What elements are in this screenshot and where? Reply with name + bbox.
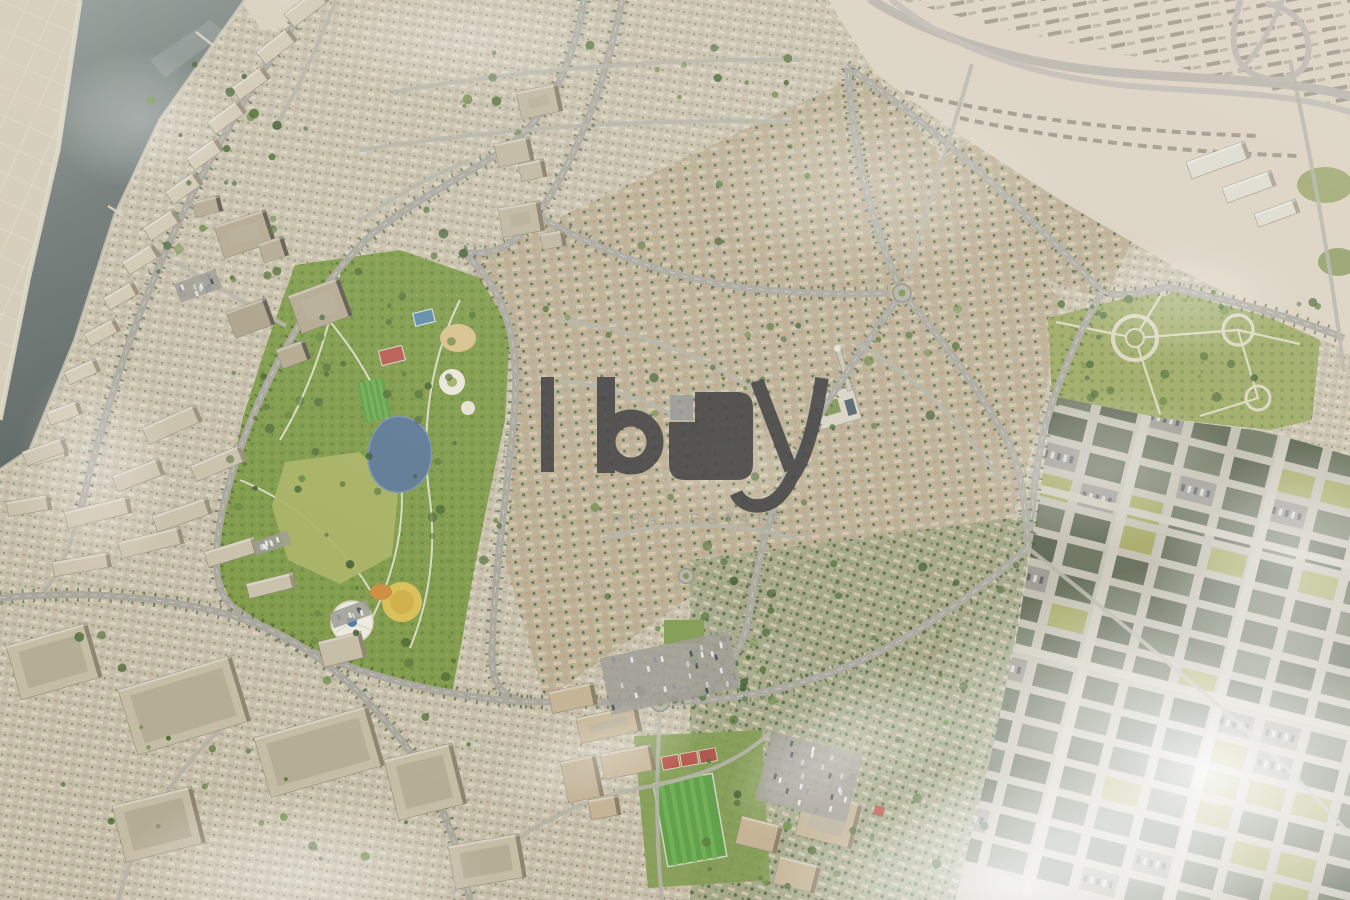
watermark-tagline: REAL ESTATE [612, 511, 788, 528]
aerial-render: buy [0, 0, 1350, 900]
logo-bar [541, 377, 554, 472]
logo-notch [670, 395, 693, 420]
masterplan-canvas: REAL ESTATE [0, 0, 1350, 900]
